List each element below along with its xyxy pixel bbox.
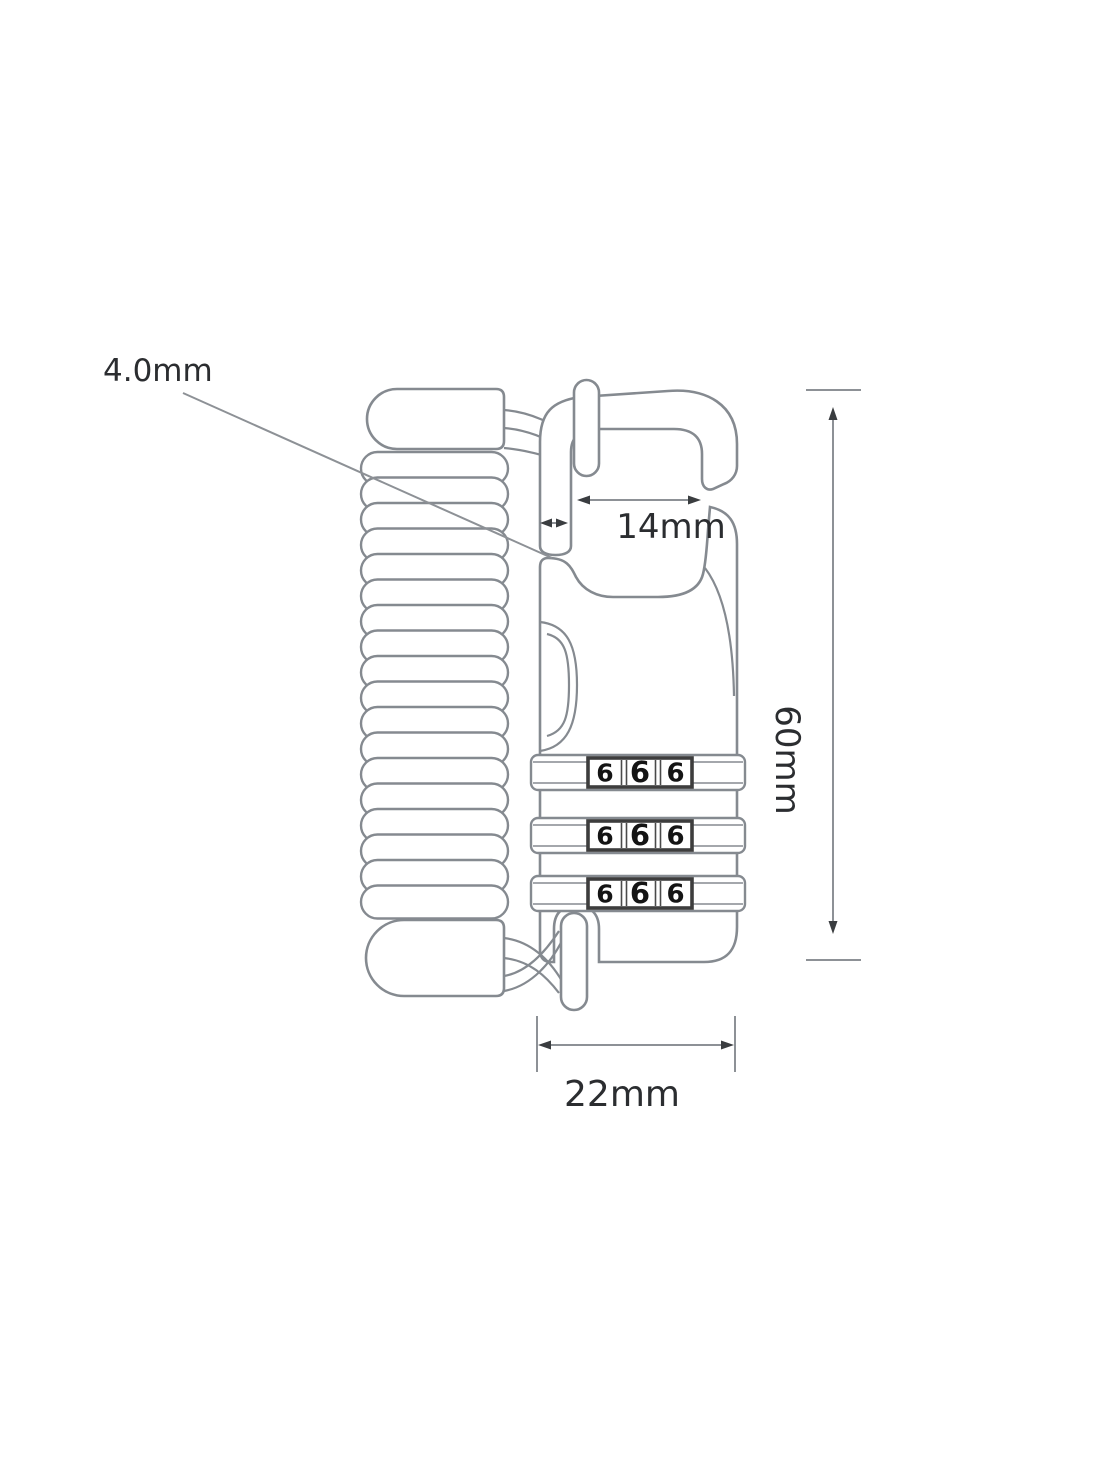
dial-band-2[interactable]: 6 6 6 (531, 818, 745, 853)
coil-spring (361, 452, 508, 919)
dim-label-cable-diameter: 4.0mm (103, 353, 213, 389)
dial-digit[interactable]: 6 (666, 759, 684, 789)
dial-digit[interactable]: 6 (630, 755, 650, 789)
dim-body-width: 22mm (537, 1016, 735, 1115)
arrowhead-right (688, 496, 701, 505)
dial-digit[interactable]: 6 (596, 822, 613, 851)
diagram-svg: 6 6 6 6 6 6 (0, 0, 1100, 1477)
arrowhead-bottom (829, 921, 838, 934)
top-ferrule (367, 389, 504, 449)
dial-digit[interactable]: 6 (630, 876, 650, 910)
dial-band-3[interactable]: 6 6 6 (531, 876, 745, 911)
dial-digit[interactable]: 6 (630, 818, 650, 852)
dial-assembly: 6 6 6 6 6 6 (531, 755, 745, 911)
dial-band-1[interactable]: 6 6 6 (531, 755, 745, 790)
arrowhead-left (538, 1041, 551, 1050)
dial-digit[interactable]: 6 (596, 880, 613, 909)
dim-label-body-height: 60mm (767, 705, 807, 815)
bottom-cable-plug (561, 913, 587, 1010)
bottom-ferrule (366, 920, 504, 996)
top-cable-plug (574, 380, 599, 476)
dial-digit[interactable]: 6 (596, 759, 613, 788)
dim-label-opening-width: 14mm (616, 507, 726, 547)
dial-digit[interactable]: 6 (666, 822, 684, 852)
arrowhead-left (577, 496, 590, 505)
dim-opening-width: 14mm (577, 496, 726, 548)
arrowhead-top (829, 407, 838, 420)
dial-digit[interactable]: 6 (666, 880, 684, 910)
arrowhead-right (721, 1041, 734, 1050)
dim-body-height: 60mm (767, 390, 861, 960)
cable-lock-dimension-diagram: 6 6 6 6 6 6 (0, 0, 1100, 1477)
dim-label-body-width: 22mm (564, 1074, 680, 1115)
coil-loop (361, 886, 508, 919)
